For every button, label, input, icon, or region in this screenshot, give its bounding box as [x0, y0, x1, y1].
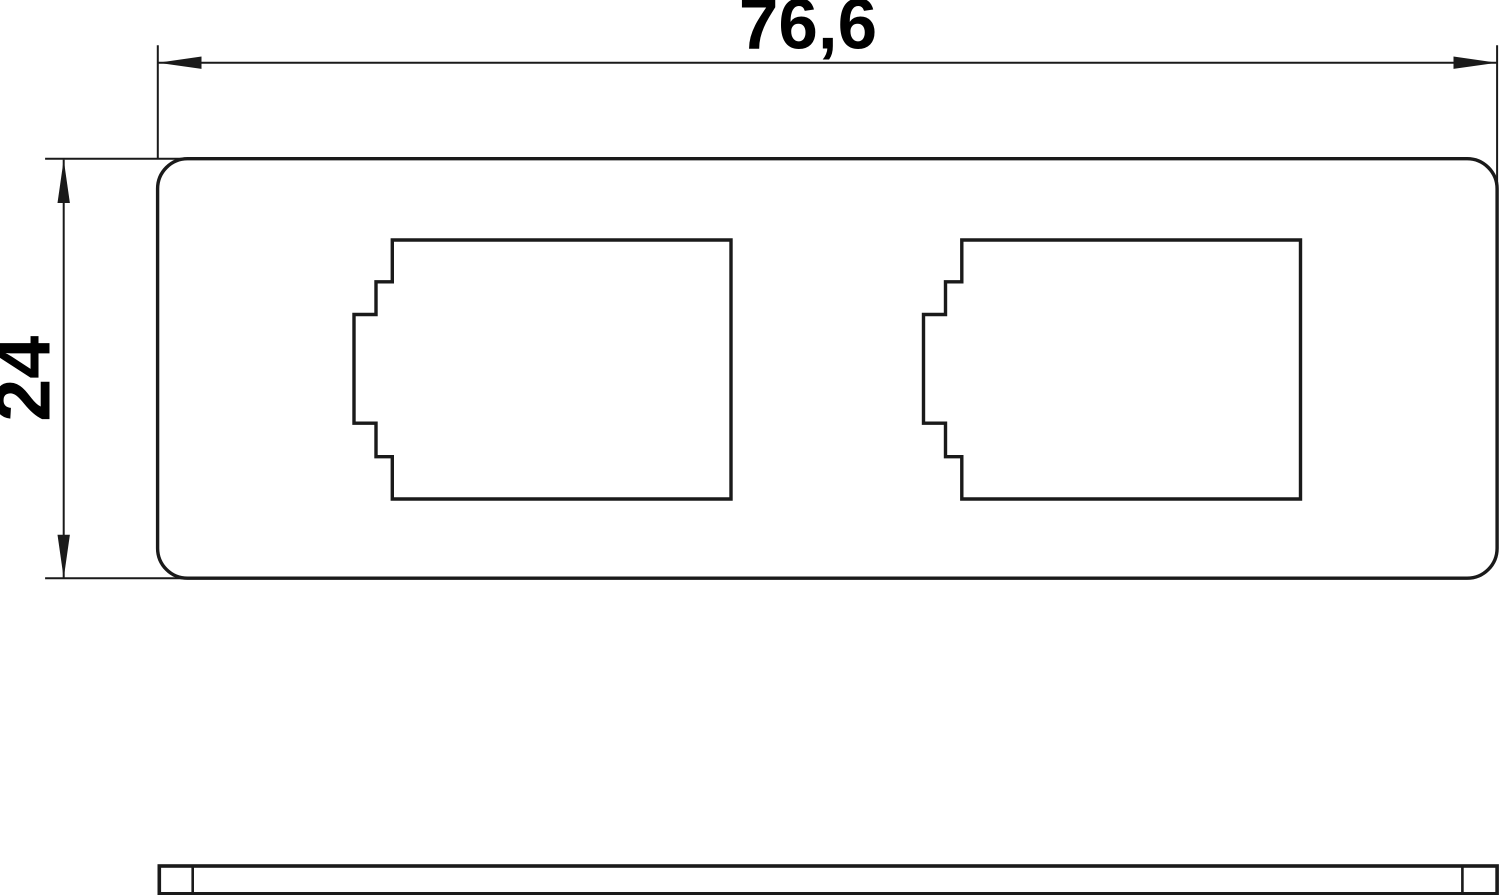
- svg-text:76,6: 76,6: [739, 0, 877, 65]
- svg-text:24: 24: [0, 336, 67, 422]
